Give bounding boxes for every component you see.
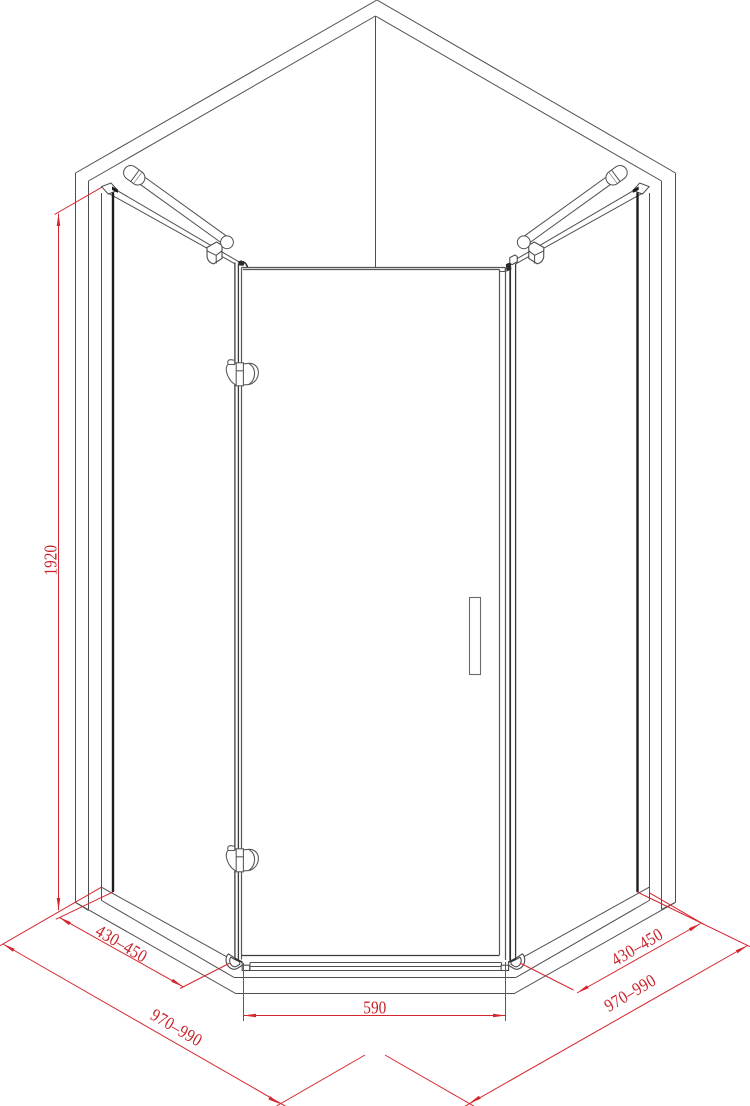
svg-text:590: 590 xyxy=(363,997,386,1017)
svg-text:1920: 1920 xyxy=(40,545,60,576)
